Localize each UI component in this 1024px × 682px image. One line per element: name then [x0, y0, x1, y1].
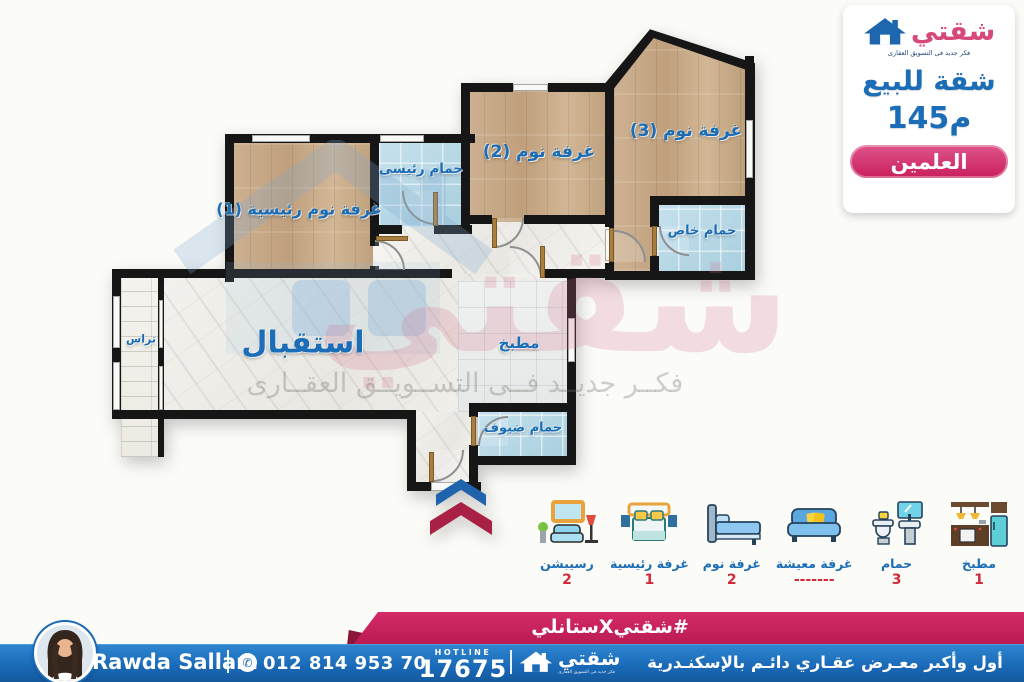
- wall: [461, 83, 513, 92]
- legend-count: 1: [645, 572, 655, 588]
- agent-photo-icon: [37, 625, 93, 681]
- phone-icon: ✆: [238, 653, 257, 672]
- house-logo-icon: [519, 649, 553, 674]
- door-leaf: [433, 192, 438, 226]
- label-master-bedroom: غرفة نوم رئيسية (1): [216, 200, 382, 219]
- brand-logo: شقتي: [843, 15, 1015, 47]
- master-bedroom-icon: [617, 500, 681, 552]
- window: [113, 296, 120, 348]
- agent-name: Rawda Sallam: [92, 650, 258, 674]
- wall: [524, 215, 614, 224]
- wall: [461, 83, 470, 234]
- hashtag-text: #شقتيXستانلي: [531, 616, 689, 638]
- window: [513, 84, 548, 91]
- legend-count: 2: [727, 572, 737, 588]
- legend-count: 2: [562, 572, 572, 588]
- legend-item-bedroom: غرفة نوم 2: [693, 500, 771, 604]
- legend-label: مطبخ: [962, 556, 996, 571]
- listing-card: شقتي فكر جديد فى التسويق العقارى شقة للب…: [843, 5, 1015, 213]
- footer-brand-name: شقتي: [558, 648, 620, 668]
- footer-brand-logo: شقتي فكر جديد فى التسويق العقارى: [519, 648, 620, 675]
- door-leaf: [492, 218, 497, 248]
- door-leaf: [609, 228, 614, 262]
- bathroom-icon: [865, 500, 929, 552]
- wall: [370, 134, 379, 234]
- door-leaf: [376, 236, 408, 241]
- house-logo-icon: [863, 15, 907, 47]
- legend-label: غرفة رئيسية: [610, 556, 689, 571]
- label-reception: استقبال: [241, 326, 364, 361]
- divider: [510, 650, 512, 674]
- label-bedroom3: غرفة نوم (3): [630, 121, 742, 141]
- kitchen-icon: [947, 500, 1011, 552]
- location-badge: العلمين: [850, 145, 1008, 178]
- footer-slogan: أول وأكبر معـرض عقـاري دائـم بالإسكنـدري…: [636, 653, 1014, 672]
- legend-item-bathroom: حمام 3: [858, 500, 936, 604]
- door-leaf: [652, 226, 657, 256]
- legend-item-living-room: غرفة معيشة -------: [775, 500, 853, 604]
- label-terrace: تراس: [126, 333, 156, 346]
- legend-item-reception: رسيبشن 2: [528, 500, 606, 604]
- wall: [370, 225, 402, 234]
- legend-count: 1: [974, 572, 984, 588]
- wall: [605, 271, 754, 280]
- brand-name: شقتي: [911, 18, 995, 45]
- living-room-icon: [782, 500, 846, 552]
- hotline-number: 17675: [418, 655, 508, 682]
- wall: [461, 215, 492, 224]
- door-leaf: [429, 452, 434, 482]
- wall: [469, 445, 478, 491]
- window: [746, 120, 753, 178]
- wall: [469, 456, 576, 465]
- label-private-bath: حمام خاص: [668, 224, 737, 239]
- window: [568, 318, 575, 362]
- wall: [650, 256, 659, 280]
- window: [252, 135, 310, 142]
- agent-avatar: [34, 622, 96, 682]
- divider: [227, 650, 229, 673]
- entrance-arrow-icon: [430, 502, 492, 535]
- legend: رسيبشن 2 غرفة رئيسية 1: [528, 500, 1018, 604]
- label-bedroom2: غرفة نوم (2): [483, 142, 595, 162]
- wall: [650, 196, 659, 227]
- door-leaf: [540, 246, 545, 278]
- label-kitchen: مطبخ: [499, 334, 540, 352]
- legend-count: -------: [794, 572, 835, 588]
- hashtag-ribbon: #شقتيXستانلي: [352, 612, 1024, 646]
- sale-title: شقة للبيع: [843, 66, 1015, 97]
- poster-stage: شقتي فكــر جديــد فــى التســويــق العقـ…: [0, 0, 1024, 682]
- reception-icon: [535, 500, 599, 552]
- footer-brand-tagline: فكر جديد فى التسويق العقارى: [558, 670, 620, 675]
- wall: [605, 83, 614, 195]
- terrace-floor: [121, 277, 159, 457]
- window: [113, 362, 120, 410]
- brand-tagline: فكر جديد فى التسويق العقارى: [843, 49, 1015, 57]
- door-leaf: [471, 416, 476, 446]
- legend-item-kitchen: مطبخ 1: [940, 500, 1018, 604]
- legend-item-master-bedroom: غرفة رئيسية 1: [610, 500, 688, 604]
- wall: [650, 196, 754, 205]
- bedroom-icon: [700, 500, 764, 552]
- wall: [567, 269, 576, 465]
- window: [159, 300, 163, 348]
- legend-label: غرفة معيشة: [776, 556, 853, 571]
- legend-label: رسيبشن: [540, 556, 594, 571]
- window: [159, 366, 163, 410]
- wall: [407, 410, 416, 491]
- wall: [469, 403, 576, 412]
- label-guest-bath: حمام ضيوف: [484, 421, 562, 436]
- wall: [407, 482, 431, 491]
- agent-phone: 012 814 953 70: [263, 653, 427, 674]
- label-master-bath: حمام رئيسى: [379, 161, 463, 177]
- legend-count: 3: [892, 572, 902, 588]
- window: [380, 135, 424, 142]
- legend-label: حمام: [881, 556, 912, 571]
- area-value: 145م: [843, 101, 1015, 136]
- legend-label: غرفة نوم: [703, 556, 761, 571]
